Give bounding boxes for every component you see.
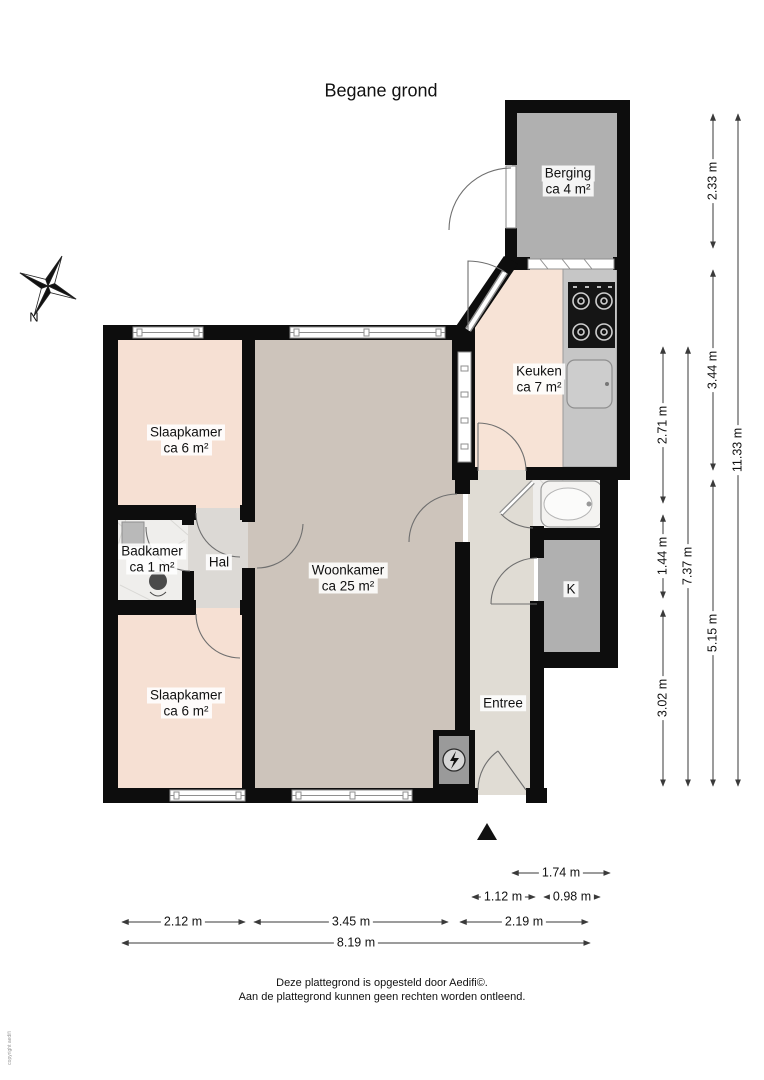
dim-3-02: 3.02 m [657,676,670,720]
door-berging [449,166,516,230]
dim-7-37: 7.37 m [682,544,695,588]
room-name: Slaapkamer [147,425,225,441]
dim-3-45: 3.45 m [329,916,373,929]
dim-0-98: 0.98 m [550,891,594,904]
room-label-entree: Entree [480,695,526,711]
floorplan-page: { "title": "Begane grond", "compass": { … [0,0,764,1080]
room-label-woonkamer: Woonkamer ca 25 m² [309,563,388,594]
room-area: ca 1 m² [126,559,177,575]
dim-2-33: 2.33 m [707,159,720,203]
room-area: ca 25 m² [319,578,378,594]
room-label-slaapkamer-onder: Slaapkamer ca 6 m² [147,688,225,719]
dim-2-12: 2.12 m [161,916,205,929]
dim-1-74: 1.74 m [539,867,583,880]
room-label-berging: Berging ca 4 m² [542,166,595,197]
room-label-slaapkamer-boven: Slaapkamer ca 6 m² [147,425,225,456]
room-area: ca 7 m² [513,379,564,395]
sink-faucet [605,382,609,386]
washbasin-icon [122,522,144,546]
room-area: ca 6 m² [160,703,211,719]
room-label-hal: Hal [206,554,232,570]
dim-2-19: 2.19 m [502,916,546,929]
copyright-note: copyright aedifi [7,1031,13,1065]
meter-cupboard [439,736,469,784]
window-woonkamer-top [290,327,445,338]
dim-1-12: 1.12 m [481,891,525,904]
footer-line2: Aan de plattegrond kunnen geen rechten w… [239,991,526,1005]
footer-line1: Deze plattegrond is opgesteld door Aedif… [239,977,526,991]
dim-2-71: 2.71 m [657,403,670,447]
dim-5-15: 5.15 m [707,611,720,655]
dim-1-44: 1.44 m [657,534,670,578]
footer-disclaimer: Deze plattegrond is opgesteld door Aedif… [239,977,526,1004]
room-name: Woonkamer [309,563,388,579]
window-keuken-woonkamer [458,352,471,462]
window-berging [528,259,614,269]
window-slaapkamer-onder [170,790,245,801]
room-label-keuken: Keuken ca 7 m² [513,364,565,395]
compass-icon [6,243,90,329]
room-name: Berging [542,166,595,182]
bathtub-drain [587,502,592,507]
slaapkamer-boven-floor [110,332,250,512]
compass-north-label: N [29,310,38,325]
floorplan-drawing [0,0,764,1080]
window-slaapkamer-boven [133,327,203,338]
dim-3-44: 3.44 m [707,348,720,392]
dim-8-19: 8.19 m [334,937,378,950]
kitchen-fixtures [563,268,617,467]
entree-floor [468,470,534,795]
page-title: Begane grond [324,81,437,102]
window-woonkamer-bottom [292,790,412,801]
entrance-marker [477,823,497,840]
dim-11-33: 11.33 m [732,425,745,475]
room-name: Keuken [513,364,565,380]
room-name: Hal [206,554,232,570]
room-name: K [563,581,578,597]
room-area: ca 6 m² [160,440,211,456]
room-name: Slaapkamer [147,688,225,704]
room-name: Badkamer [118,544,186,560]
room-label-badkamer: Badkamer ca 1 m² [118,544,186,575]
toilet-icon [149,572,167,590]
room-name: Entree [480,695,526,711]
bathtub-basin [544,488,592,520]
room-label-kast: K [563,581,578,597]
room-area: ca 4 m² [542,181,593,197]
